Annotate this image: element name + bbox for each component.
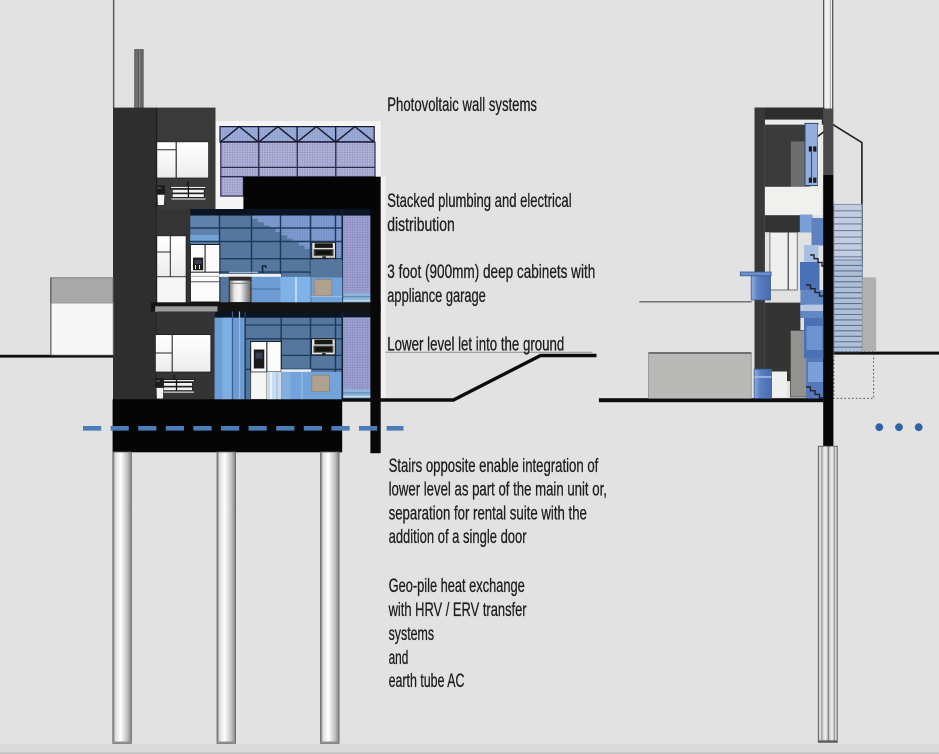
svg-text:lower level as part of the mai: lower level as part of the main unit or, (389, 480, 607, 501)
svg-text:Photovoltaic wall systems: Photovoltaic wall systems (387, 95, 537, 116)
svg-text:appliance garage: appliance garage (387, 286, 486, 307)
svg-text:distribution: distribution (387, 215, 455, 236)
svg-text:addition of a single door: addition of a single door (389, 527, 527, 548)
svg-text:with HRV / ERV transfer: with HRV / ERV transfer (388, 600, 527, 621)
svg-text:earth tube AC: earth tube AC (389, 671, 465, 692)
svg-text:systems: systems (389, 624, 435, 645)
svg-text:Lower level let into the groun: Lower level let into the ground (387, 334, 564, 355)
svg-text:and: and (389, 648, 409, 669)
svg-text:3 foot (900mm) deep cabinets: 3 foot (900mm) deep cabinets with (387, 262, 595, 283)
svg-text:Geo-pile heat exchange: Geo-pile heat exchange (389, 576, 525, 597)
svg-text:Stacked plumbing and electrica: Stacked plumbing and electrical (387, 191, 571, 212)
svg-text:Stairs opposite enable integra: Stairs opposite enable integration of (389, 456, 599, 477)
svg-text:separation for rental suite wi: separation for rental suite with the (389, 503, 587, 524)
